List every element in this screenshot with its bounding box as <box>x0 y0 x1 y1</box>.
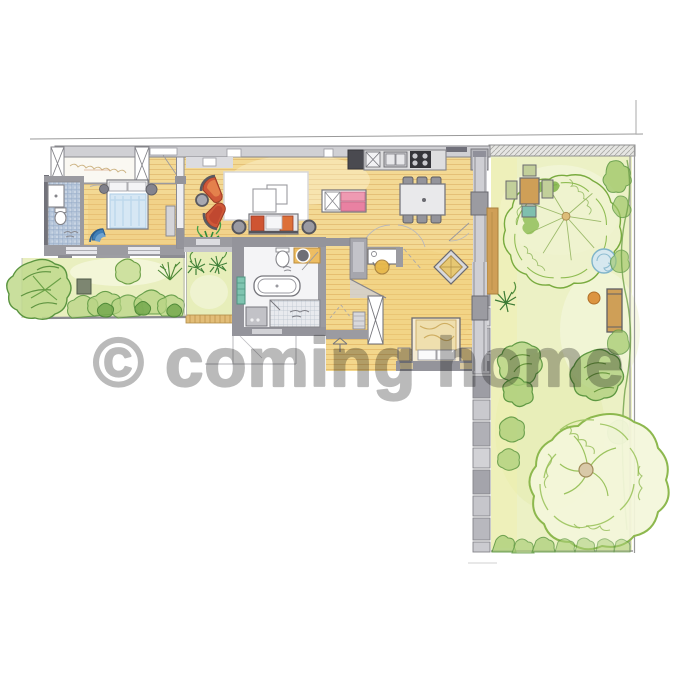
svg-text:© coming home: © coming home <box>93 324 625 401</box>
